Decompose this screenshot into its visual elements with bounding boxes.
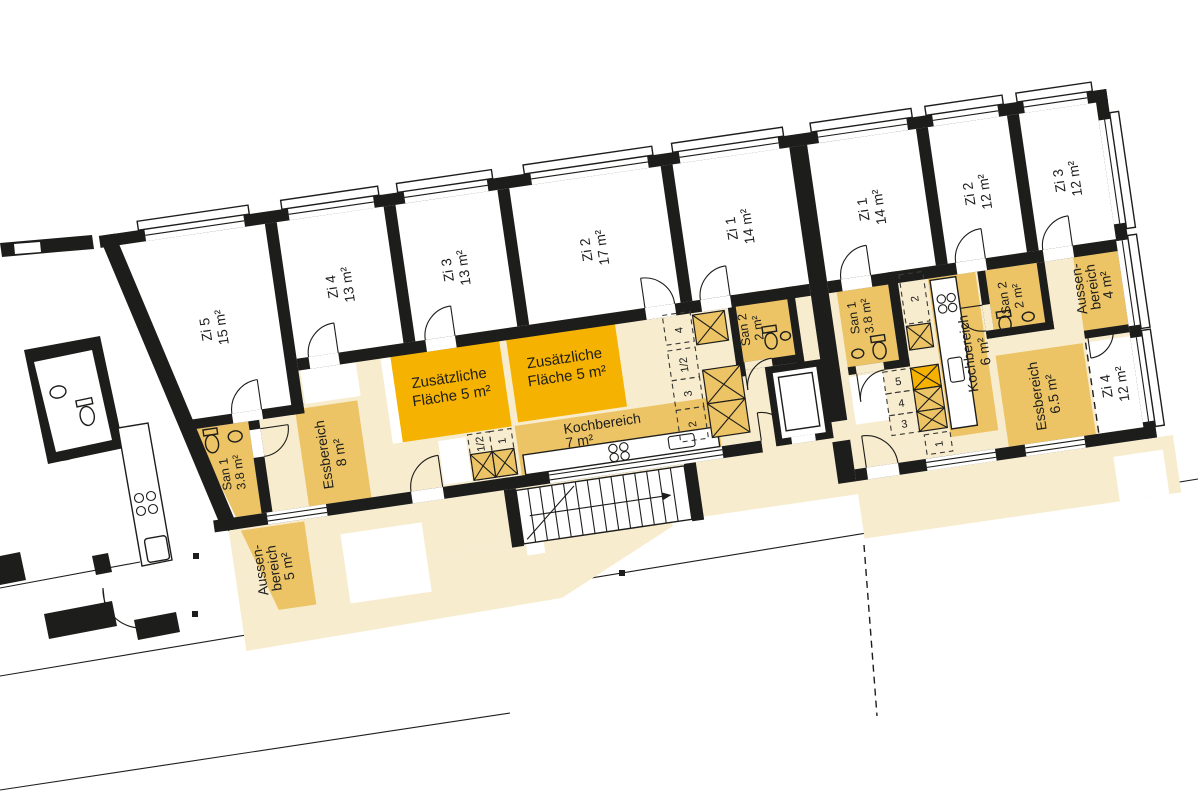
storage-x-box — [707, 398, 750, 437]
window — [925, 95, 1005, 127]
window — [671, 127, 785, 164]
window — [1098, 111, 1136, 230]
storage-x-box — [470, 451, 496, 480]
window — [281, 186, 381, 221]
neighbour-north-wall — [0, 235, 94, 257]
site-dashed-boundary — [864, 545, 877, 716]
room-label-zi5-left: Zi 5 15 m² — [195, 308, 232, 348]
window — [810, 108, 914, 144]
room-label-zi2-left: Zi 2 17 m² — [575, 228, 612, 268]
storage-x-box — [492, 448, 518, 477]
room-label-san1-left: San 1 3.8 m² — [216, 454, 249, 493]
railing-post — [192, 611, 198, 617]
storage-cell-number: 1/2 — [474, 436, 488, 453]
room-label-zi3-left: Zi 3 13 m² — [437, 249, 474, 289]
room-label-zi4-left: Zi 4 13 m² — [321, 265, 358, 305]
storage-x-box — [703, 365, 746, 404]
railing-post — [619, 570, 625, 576]
storage-x-box — [692, 310, 728, 344]
storage-x-box — [917, 408, 948, 432]
elevator — [765, 359, 834, 447]
railing-post — [193, 553, 199, 559]
floor-plan: Zi 5 15 m² Zi 4 13 m² Zi 3 13 m² Zi 2 17… — [0, 0, 1200, 805]
floor-plan-canvas: Zi 5 15 m² Zi 4 13 m² Zi 3 13 m² Zi 2 17… — [0, 0, 1200, 805]
room-label-zi2-right: Zi 2 12 m² — [958, 172, 995, 212]
room-label-zi3-right: Zi 3 12 m² — [1048, 159, 1085, 199]
main-building: Zi 5 15 m² Zi 4 13 m² Zi 3 13 m² Zi 2 17… — [98, 78, 1185, 664]
window — [1016, 82, 1094, 114]
room-label-san1-right: San 1 3.8 m² — [844, 297, 877, 336]
storage-x-box — [906, 323, 933, 350]
window — [137, 205, 251, 242]
window — [396, 170, 494, 205]
room-label-zi1-right: Zi 1 14 m² — [852, 188, 889, 228]
room-label-zi1-left: Zi 1 14 m² — [721, 207, 758, 247]
window — [523, 146, 655, 186]
storage-cell-number: 1/2 — [678, 356, 692, 373]
neighbour-building — [0, 235, 180, 640]
